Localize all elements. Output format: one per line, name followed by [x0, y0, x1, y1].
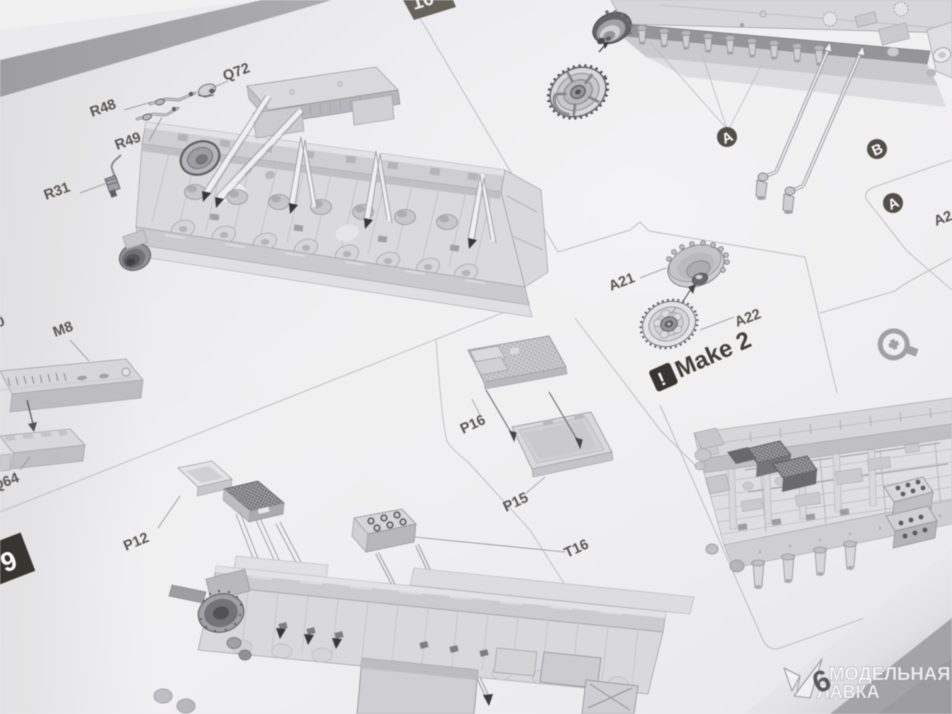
svg-text:МОДЕЛЬНАЯ: МОДЕЛЬНАЯ: [829, 663, 950, 684]
